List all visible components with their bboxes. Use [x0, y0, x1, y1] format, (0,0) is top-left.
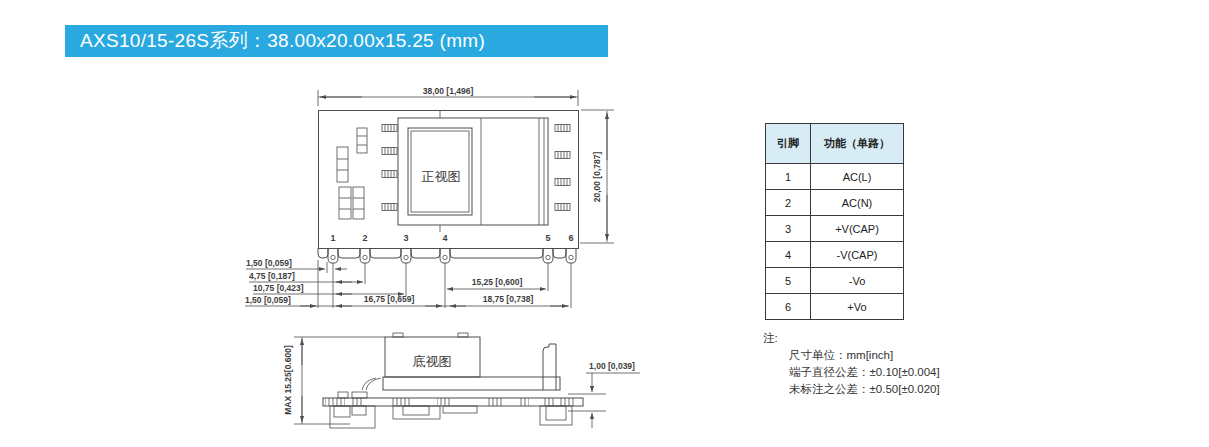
front-view-drawing: 38,00 [1,496] 20,00 [0,787] 正视图	[245, 86, 614, 308]
note-units: 尺寸单位：mm[inch]	[789, 347, 940, 364]
pin-number-4: 4	[442, 233, 447, 243]
notes-title: 注:	[763, 330, 940, 347]
pin-number-3: 3	[403, 233, 408, 243]
bottom-view-max-height-label: MAX 15.25[0.600]	[283, 345, 293, 415]
pin-cell: 6	[766, 294, 811, 320]
function-cell: AC(L)	[811, 164, 904, 190]
pin-tabs	[328, 248, 576, 263]
pin-column-header: 引脚	[766, 124, 811, 164]
notes-block: 注: 尺寸单位：mm[inch] 端子直径公差：±0.10[±0.004] 未标…	[763, 330, 940, 398]
dim-pin3-span-label: 10,75 [0,423]	[253, 283, 304, 293]
function-column-header: 功能（单路）	[811, 124, 904, 164]
datasheet-page: AXS10/15-26S系列：38.00x20.00x15.25 (mm)	[0, 0, 1209, 447]
pin-cell: 5	[766, 268, 811, 294]
table-row: 5 -Vo	[766, 268, 904, 294]
dim-edge-offset-label: 1,50 [0,059]	[245, 295, 291, 305]
table-header-row: 引脚 功能（单路）	[766, 124, 904, 164]
front-view-width-dim-label: 38,00 [1,496]	[423, 86, 474, 96]
table-row: 2 AC(N)	[766, 190, 904, 216]
dim-pin2-span-label: 4,75 [0,187]	[249, 271, 295, 281]
dim-pin1-offset-label: 1,50 [0,059]	[246, 258, 292, 268]
dim-pin4-span-label: 16,75 [0,659]	[364, 294, 415, 304]
right-header-pins	[555, 125, 570, 211]
table-row: 1 AC(L)	[766, 164, 904, 190]
component-outlines	[337, 128, 367, 219]
pin-cell: 4	[766, 242, 811, 268]
pin-number-1: 1	[330, 233, 335, 243]
front-view-height-dim-label: 20,00 [0,787]	[592, 152, 602, 203]
left-header-pins	[382, 125, 397, 211]
function-cell: -V(CAP)	[811, 242, 904, 268]
pin-cell: 2	[766, 190, 811, 216]
pcb-hatch	[325, 398, 575, 406]
table-row: 4 -V(CAP)	[766, 242, 904, 268]
front-view-label: 正视图	[422, 169, 461, 184]
pin-number-5: 5	[545, 233, 550, 243]
function-cell: +V(CAP)	[811, 216, 904, 242]
function-cell: +Vo	[811, 294, 904, 320]
function-cell: -Vo	[811, 268, 904, 294]
dim-pin6-span-label: 18,75 [0,738]	[483, 294, 534, 304]
note-terminal-tolerance: 端子直径公差：±0.10[±0.004]	[789, 364, 940, 381]
underside-components	[330, 406, 572, 428]
pin-number-2: 2	[362, 233, 367, 243]
pin-number-6: 6	[568, 233, 573, 243]
table-row: 6 +Vo	[766, 294, 904, 320]
table-row: 3 +V(CAP)	[766, 216, 904, 242]
function-cell: AC(N)	[811, 190, 904, 216]
note-general-tolerance: 未标注之公差：±0.50[±0.020]	[789, 381, 940, 398]
mechanical-drawing: 38,00 [1,496] 20,00 [0,787] 正视图	[0, 0, 700, 447]
bottom-view-label: 底视图	[413, 354, 452, 369]
bottom-view-standoff-dim-label: 1,00 [0,039]	[589, 361, 635, 371]
dim-pin5-span-label: 15,25 [0,600]	[472, 277, 523, 287]
pin-function-table: 引脚 功能（单路） 1 AC(L) 2 AC(N) 3 +V(CAP) 4 -V…	[765, 123, 904, 320]
bottom-view-drawing: MAX 15.25[0.600] 底视图	[283, 333, 640, 428]
pin-cell: 3	[766, 216, 811, 242]
standoff-feet	[318, 248, 566, 258]
pin-cell: 1	[766, 164, 811, 190]
